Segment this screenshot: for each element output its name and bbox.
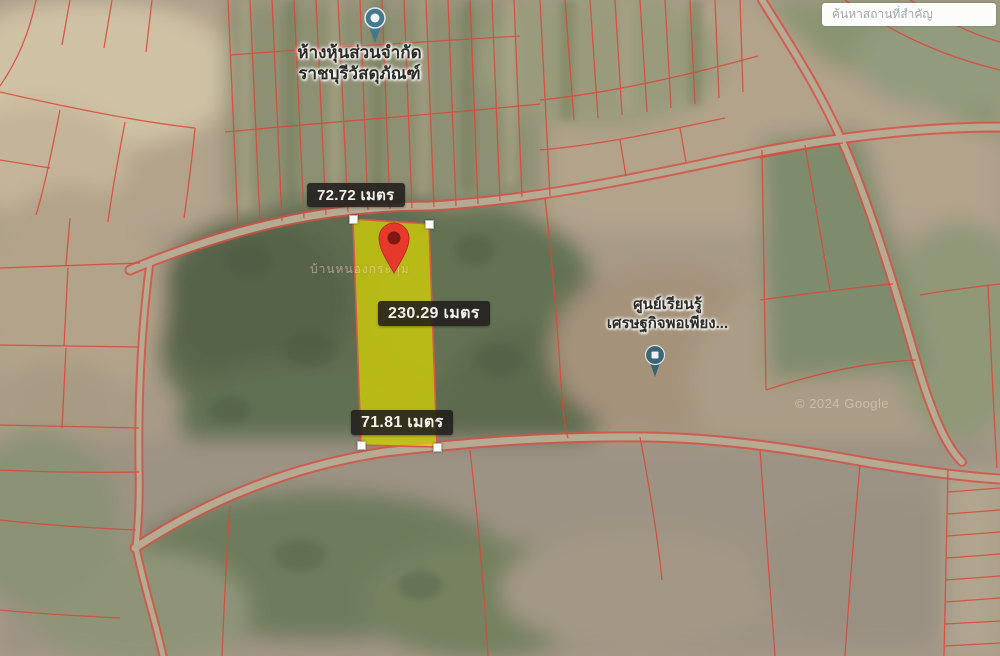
measurement-label-top-width: 72.72 เมตร: [307, 183, 405, 207]
map-terrain-layer: [0, 0, 1000, 656]
company-name-line1: ห้างหุ้นส่วนจำกัด: [262, 42, 457, 63]
search-input[interactable]: ค้นหาสถานที่สำคัญ: [822, 3, 996, 26]
google-copyright-watermark: © 2024 Google: [795, 396, 889, 411]
parcel-corner-handle[interactable]: [349, 215, 358, 224]
learning-center-poi-label[interactable]: ศูนย์เรียนรู้ เศรษฐกิจพอเพียง...: [575, 296, 760, 334]
learning-center-name-line2: เศรษฐกิจพอเพียง...: [575, 315, 760, 334]
parcel-corner-handle[interactable]: [357, 441, 366, 450]
teal-poi-pin-icon: [362, 5, 388, 45]
parcel-corner-handle[interactable]: [425, 220, 434, 229]
company-poi-pin[interactable]: [362, 5, 388, 45]
measurement-label-bottom-width: 71.81 เมตร: [351, 410, 453, 435]
selected-location-pin[interactable]: [374, 220, 414, 274]
measurement-label-length: 230.29 เมตร: [378, 301, 490, 326]
red-map-pin-icon: [374, 220, 414, 274]
terrain-patches: [0, 0, 1000, 656]
learning-center-poi-pin[interactable]: [643, 343, 667, 379]
parcel-corner-handle[interactable]: [433, 443, 442, 452]
teal-poi-pin-icon: [643, 343, 667, 379]
company-name-line2: ราชบุรีวัสดุภัณฑ์: [262, 63, 457, 84]
company-poi-label[interactable]: ห้างหุ้นส่วนจำกัด ราชบุรีวัสดุภัณฑ์: [262, 42, 457, 85]
satellite-map[interactable]: บ้านหนองกระทุ่ม ห้างหุ้นส่วนจำกัด ราชบุร…: [0, 0, 1000, 656]
learning-center-name-line1: ศูนย์เรียนรู้: [575, 296, 760, 315]
